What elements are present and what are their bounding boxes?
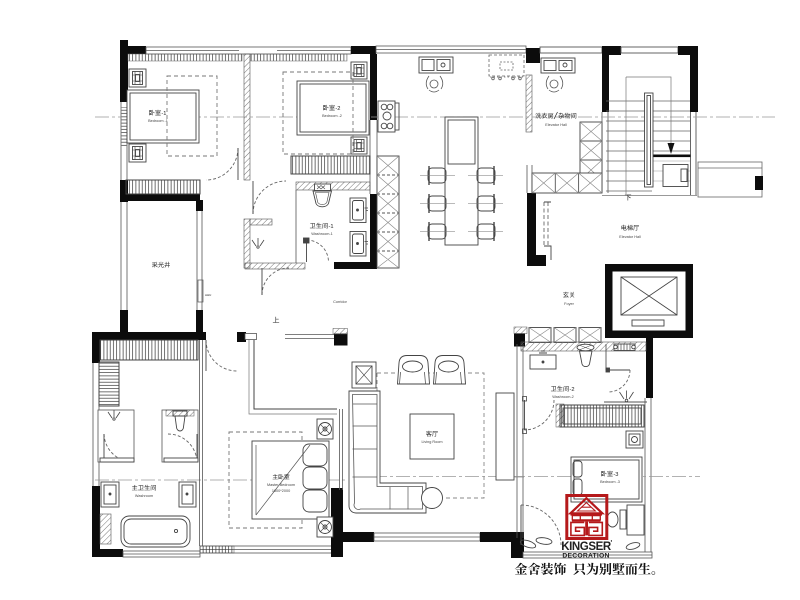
svg-text:Elevator Hall: Elevator Hall [619,235,641,239]
svg-text:Bedroom -2: Bedroom -2 [322,114,342,118]
svg-text:-1: -1 [161,111,166,117]
svg-text:-1: -1 [329,224,334,230]
svg-text:-2: -2 [570,387,575,393]
svg-text:AHU: AHU [205,293,211,297]
svg-text:Foyer: Foyer [564,302,574,306]
svg-text:Washroom-2: Washroom-2 [552,395,574,399]
svg-text:Corridor: Corridor [333,300,347,304]
svg-text:1800*2000: 1800*2000 [272,489,290,493]
svg-text:Elevator Hall: Elevator Hall [545,123,567,127]
svg-text:Bedroom -3: Bedroom -3 [600,480,620,484]
svg-text:-2: -2 [335,106,340,112]
svg-text:Bedroom -1: Bedroom -1 [148,119,168,123]
svg-text:Washroom: Washroom [135,494,153,498]
svg-text:-3: -3 [613,472,618,478]
svg-text:DECORATION: DECORATION [562,553,609,560]
svg-text:Living Room: Living Room [421,440,442,444]
svg-text:Master Bedroom: Master Bedroom [267,483,295,487]
svg-text:Washroom-1: Washroom-1 [311,232,333,236]
svg-text:KINGSER: KINGSER [561,541,612,553]
